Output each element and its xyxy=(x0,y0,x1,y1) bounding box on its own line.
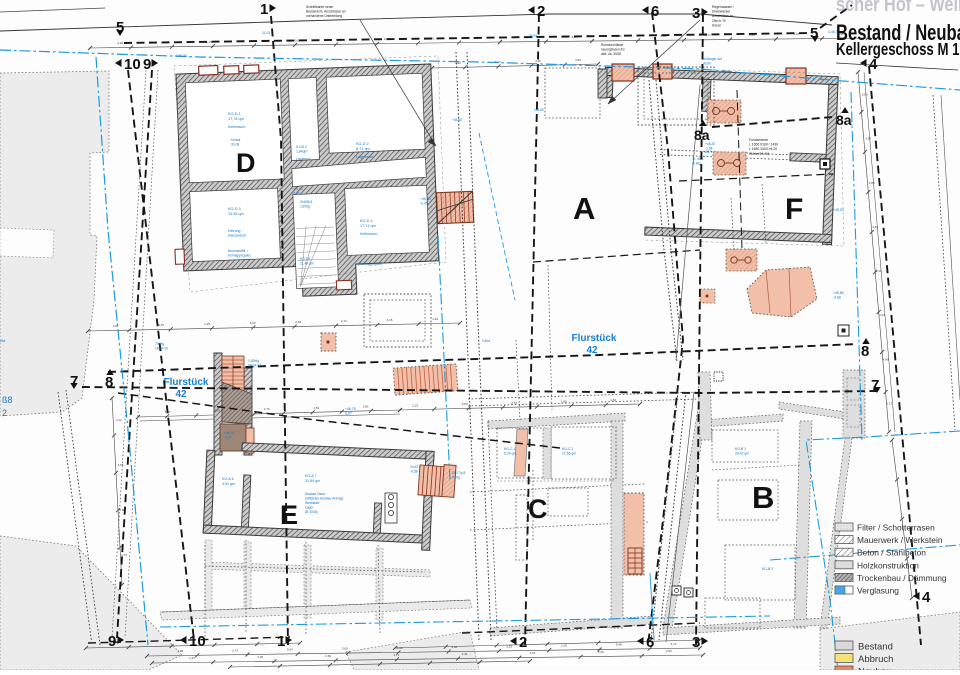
svg-text:E: E xyxy=(280,500,298,530)
svg-text:1,25: 1,25 xyxy=(204,322,210,326)
svg-text:5,68: 5,68 xyxy=(397,646,403,650)
svg-text:Lagerraum: Lagerraum xyxy=(356,155,373,159)
svg-text:3: 3 xyxy=(692,634,700,651)
svg-text:1,81: 1,81 xyxy=(432,317,438,321)
svg-text:KG-D 3: KG-D 3 xyxy=(228,207,241,211)
svg-text:KG-D 4: KG-D 4 xyxy=(360,219,373,223)
svg-text:11,01: 11,01 xyxy=(262,31,270,35)
svg-text:Bestand: Bestand xyxy=(858,642,893,653)
svg-text:3,26: 3,26 xyxy=(257,655,263,659)
svg-text:1,82: 1,82 xyxy=(610,398,616,402)
svg-text:13/Stg: 13/Stg xyxy=(300,205,310,209)
svg-text:0,4ba: 0,4ba xyxy=(482,339,490,343)
svg-text:Heizung: Heizung xyxy=(228,229,241,233)
svg-text:3,81: 3,81 xyxy=(363,405,369,409)
svg-text:-0,38: -0,38 xyxy=(410,470,418,474)
svg-text:-0,68: -0,68 xyxy=(833,296,841,300)
svg-text:4-46,76: 4-46,76 xyxy=(175,54,187,58)
svg-text:-0,45: -0,45 xyxy=(292,192,300,196)
svg-text:3,87: 3,87 xyxy=(158,323,164,327)
svg-text:Holzlager auf: Holzlager auf xyxy=(703,57,722,61)
svg-text:KG-C 1: KG-C 1 xyxy=(504,447,515,451)
svg-text:Kanal: Kanal xyxy=(712,23,721,27)
svg-text:9: 9 xyxy=(143,56,151,73)
svg-text:+43,13: +43,13 xyxy=(292,187,303,191)
svg-text:Fundamente: Fundamente xyxy=(749,138,768,142)
svg-text:KG-D 1: KG-D 1 xyxy=(228,112,241,116)
svg-text:17,71 qm: 17,71 qm xyxy=(360,224,376,228)
svg-text:3: 3 xyxy=(692,5,700,22)
svg-text:5,64: 5,64 xyxy=(287,648,293,652)
svg-text:3,98: 3,98 xyxy=(865,137,871,141)
svg-text:2,20: 2,20 xyxy=(561,644,567,648)
svg-text:Bestandsm. Anschlüsse an: Bestandsm. Anschlüsse an xyxy=(306,10,346,14)
svg-text:42: 42 xyxy=(175,389,187,400)
svg-text:2,65: 2,65 xyxy=(666,649,672,653)
svg-text:3,48: 3,48 xyxy=(451,645,457,649)
svg-text:2,33: 2,33 xyxy=(506,644,512,648)
svg-text:2,57: 2,57 xyxy=(511,401,517,405)
svg-text:A: A xyxy=(573,191,595,226)
svg-text:+45,88: +45,88 xyxy=(452,118,462,122)
svg-text:Flurstück: Flurstück xyxy=(163,377,208,388)
svg-text:+45,88: +45,88 xyxy=(833,291,844,295)
svg-text:KG-B 2: KG-B 2 xyxy=(762,567,773,571)
svg-text:-0,07: -0,07 xyxy=(224,435,231,439)
svg-text:+46,35: +46,35 xyxy=(420,197,431,201)
svg-text:1b/17/p,8: 1b/17/p,8 xyxy=(452,471,466,475)
svg-text:+46,78: +46,78 xyxy=(345,407,356,411)
svg-text:(B 4036): (B 4036) xyxy=(305,510,318,514)
svg-text:2,53: 2,53 xyxy=(295,320,301,324)
svg-text:5,48: 5,48 xyxy=(616,643,622,647)
svg-text:4,99: 4,99 xyxy=(883,357,889,361)
svg-text:+45,20: +45,20 xyxy=(833,208,844,212)
svg-text:9: 9 xyxy=(108,633,116,650)
svg-text:17,78 qm: 17,78 qm xyxy=(228,117,244,121)
svg-text:1,50Hg: 1,50Hg xyxy=(248,359,259,363)
svg-text:3,86: 3,86 xyxy=(869,181,875,185)
svg-text:7/0Hg: 7/0Hg xyxy=(155,342,164,346)
svg-text:31,84 qm: 31,84 qm xyxy=(305,479,320,483)
svg-text:Werkstatt: Werkstatt xyxy=(305,501,319,505)
svg-text:Lavabrun: Lavabrun xyxy=(296,157,310,161)
svg-text:Filter / Schotterrasen: Filter / Schotterrasen xyxy=(857,523,935,533)
svg-text:3,63: 3,63 xyxy=(214,409,220,413)
svg-text:1,84qm: 1,84qm xyxy=(296,150,307,154)
svg-text:1,44: 1,44 xyxy=(879,313,885,317)
svg-text:KG-C 2: KG-C 2 xyxy=(562,447,573,451)
svg-text:J/9,91: J/9,91 xyxy=(528,34,537,38)
svg-text:4,61: 4,61 xyxy=(530,651,536,655)
svg-text:3,12: 3,12 xyxy=(116,418,122,422)
svg-text:9,34 qm: 9,34 qm xyxy=(504,452,516,456)
svg-text:P,8/tg: P,8/tg xyxy=(452,475,460,479)
svg-text:(KühlAggregate): (KühlAggregate) xyxy=(358,262,382,266)
svg-text:30,08: 30,08 xyxy=(231,143,239,147)
svg-text:Ausbau-Haus: Ausbau-Haus xyxy=(305,492,325,496)
svg-text:3,29: 3,29 xyxy=(117,41,123,45)
svg-text:KG-B 1: KG-B 1 xyxy=(735,447,746,451)
svg-text:4,15: 4,15 xyxy=(387,318,393,322)
svg-text:D: D xyxy=(236,148,256,178)
svg-text:C: C xyxy=(528,494,548,524)
svg-text:Neubau: Neubau xyxy=(858,667,891,671)
svg-text:10: 10 xyxy=(124,56,141,73)
svg-text:Beton / Stahlbeton: Beton / Stahlbeton xyxy=(857,548,926,558)
svg-text:11,48 qm: 11,48 qm xyxy=(300,262,314,266)
svg-text:ß8: ß8 xyxy=(2,395,13,405)
svg-text:2: 2 xyxy=(519,634,527,651)
svg-text:4,46: 4,46 xyxy=(535,59,541,63)
svg-text:5,63: 5,63 xyxy=(250,321,256,325)
svg-text:Verglasung: Verglasung xyxy=(857,586,899,596)
svg-text:1,31: 1,31 xyxy=(462,652,468,656)
svg-text:KG-A 6: KG-A 6 xyxy=(222,477,234,481)
svg-text:(luftdicker Ausbau-Antrag):: (luftdicker Ausbau-Antrag): xyxy=(305,497,344,501)
svg-text:2: 2 xyxy=(537,3,545,20)
svg-text:4,91 qm: 4,91 qm xyxy=(222,482,235,486)
svg-text:5,73: 5,73 xyxy=(671,642,677,646)
svg-text:1,17: 1,17 xyxy=(886,401,892,405)
svg-text:2,73: 2,73 xyxy=(232,648,238,652)
svg-text:Knlauf: Knlauf xyxy=(231,138,240,142)
svg-text:7: 7 xyxy=(871,377,879,394)
svg-text:L 1650 3400 /nt 20: L 1650 3400 /nt 20 xyxy=(749,147,777,151)
svg-text:Mauerwerk / Werkstein: Mauerwerk / Werkstein xyxy=(857,535,943,545)
svg-text:Abbruch: Abbruch xyxy=(858,654,893,665)
svg-text:10: 10 xyxy=(189,633,206,650)
svg-text:1,19: 1,19 xyxy=(206,40,212,44)
svg-text:+46,76: +46,76 xyxy=(224,431,234,435)
svg-text:Brennstofflit. /: Brennstofflit. / xyxy=(228,249,248,253)
svg-text:Regenwasser /: Regenwasser / xyxy=(712,5,734,9)
svg-text:148,89: 148,89 xyxy=(534,108,544,112)
svg-text:4,18: 4,18 xyxy=(876,269,882,273)
svg-text:K-GA 2: K-GA 2 xyxy=(296,145,307,149)
svg-text:6: 6 xyxy=(646,634,654,651)
svg-text:Kellerraum: Kellerraum xyxy=(360,232,377,236)
svg-text:3,69: 3,69 xyxy=(342,647,348,651)
svg-text:Hausanschl.: Hausanschl. xyxy=(228,234,247,238)
svg-text:28,42 qm: 28,42 qm xyxy=(735,452,749,456)
svg-text:Kühler/18 /16: Kühler/18 /16 xyxy=(749,152,769,156)
svg-text:Drainwasser: Drainwasser xyxy=(712,10,731,14)
svg-text:18,24 St: 18,24 St xyxy=(155,347,168,351)
svg-text:1: 1 xyxy=(277,633,285,650)
svg-text:neuergänzen /bz: neuergänzen /bz xyxy=(601,47,625,51)
svg-text:8: 8 xyxy=(861,343,869,360)
svg-text:Anschlüsse an: Anschlüsse an xyxy=(712,14,734,18)
svg-text:2: 2 xyxy=(2,408,7,418)
svg-text:29m b 7t/: 29m b 7t/ xyxy=(712,19,726,23)
svg-text:8a: 8a xyxy=(694,127,710,143)
svg-text:17,66 qm: 17,66 qm xyxy=(562,452,576,456)
svg-text:8a: 8a xyxy=(836,112,852,128)
svg-text:-0,45: -0,45 xyxy=(420,202,428,206)
svg-text:1,83: 1,83 xyxy=(313,406,319,410)
svg-text:Kellerraum: Kellerraum xyxy=(228,125,245,129)
svg-text:4ba: 4ba xyxy=(0,339,6,343)
svg-text:Lager: Lager xyxy=(305,506,314,510)
svg-text:40,0b: 40,0b xyxy=(703,61,711,65)
svg-text:18,24 St: 18,24 St xyxy=(248,364,261,368)
svg-text:8,71 qm: 8,71 qm xyxy=(356,147,370,151)
svg-text:6: 6 xyxy=(651,3,659,20)
svg-text:L 1650 9160 / 1430: L 1650 9160 / 1430 xyxy=(749,143,778,147)
svg-text:5,50: 5,50 xyxy=(862,93,868,97)
svg-text:Flurstück: Flurstück xyxy=(571,333,616,344)
svg-text:KG-A 7: KG-A 7 xyxy=(305,474,317,478)
svg-text:Holzkonstruktion: Holzkonstruktion xyxy=(857,560,919,570)
svg-text:3/4/08,8: 3/4/08,8 xyxy=(300,200,312,204)
svg-text:F: F xyxy=(785,193,803,226)
svg-text:2,23: 2,23 xyxy=(412,403,418,407)
svg-text:444,9: 444,9 xyxy=(704,150,712,154)
svg-text:4,95: 4,95 xyxy=(575,58,581,62)
svg-text:Rohrdurchlässe: Rohrdurchlässe xyxy=(601,43,624,47)
svg-text:5,45: 5,45 xyxy=(598,650,604,654)
svg-text:4,55: 4,55 xyxy=(118,463,124,467)
svg-text:2,72: 2,72 xyxy=(341,319,347,323)
svg-text:Kühlaggregate): Kühlaggregate) xyxy=(228,254,251,258)
svg-text:scher Hof – Wein: scher Hof – Wein xyxy=(836,0,960,16)
svg-text:2,60: 2,60 xyxy=(325,654,331,658)
svg-text:10,45 qm: 10,45 qm xyxy=(228,212,244,216)
svg-text:5,83: 5,83 xyxy=(462,402,468,406)
svg-text:vorhandene Unterteilung: vorhandene Unterteilung xyxy=(306,14,342,18)
svg-text:abd. ca. 30/30: abd. ca. 30/30 xyxy=(601,52,621,56)
svg-text:1,89: 1,89 xyxy=(177,649,183,653)
svg-text:Kellergeschoss M 1:100: Kellergeschoss M 1:100 xyxy=(836,39,960,59)
svg-text:KG-D5: KG-D5 xyxy=(300,257,310,261)
svg-text:2,79: 2,79 xyxy=(264,407,270,411)
svg-text:1,37: 1,37 xyxy=(189,656,195,660)
svg-text:4: 4 xyxy=(922,589,931,606)
svg-text:4,73: 4,73 xyxy=(393,653,399,657)
svg-text:1,80: 1,80 xyxy=(561,399,567,403)
svg-text:B: B xyxy=(752,480,774,515)
svg-text:Schnittkante neuer: Schnittkante neuer xyxy=(306,5,334,9)
svg-text:Trockenbau / Dämmung: Trockenbau / Dämmung xyxy=(857,573,947,583)
svg-text:4,84: 4,84 xyxy=(872,225,878,229)
svg-text:1,73: 1,73 xyxy=(121,553,127,557)
svg-text:KG-D 2: KG-D 2 xyxy=(356,142,369,146)
svg-text:1: 1 xyxy=(260,1,268,18)
svg-text:8: 8 xyxy=(105,374,113,391)
svg-text:6,07: 6,07 xyxy=(345,412,352,416)
